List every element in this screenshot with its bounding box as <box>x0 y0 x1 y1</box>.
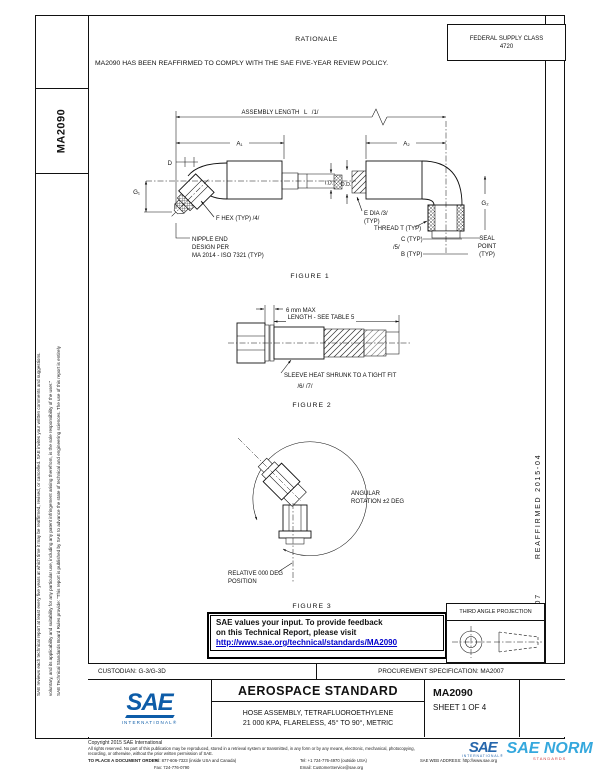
fsc-label: FEDERAL SUPPLY CLASS <box>470 35 544 43</box>
fig1-nipple-label-1: NIPPLE END <box>192 237 228 243</box>
feedback-box: SAE values your input. To provide feedba… <box>207 612 447 659</box>
fig3-relative-label-1: RELATIVE 000 DEG <box>228 571 283 577</box>
federal-supply-class-box: FEDERAL SUPPLY CLASS 4720 <box>447 24 566 61</box>
fig1-seal-label-3: (TYP) <box>479 252 495 258</box>
sae-logo-swoosh <box>125 715 174 718</box>
title-block-center: AEROSPACE STANDARD HOSE ASSEMBLY, TETRAF… <box>212 680 425 737</box>
sheet-number: SHEET 1 OF 4 <box>433 703 519 712</box>
figure3-labels: ANGULAR ROTATION ±2 DEG RELATIVE 000 DEG… <box>228 491 404 610</box>
fig1-note5-label: /5/ <box>393 245 400 251</box>
fig1-seal-label-1: SEAL <box>479 236 495 242</box>
fig1-g1-label: G₁ <box>133 189 140 196</box>
document-title-line-1: HOSE ASSEMBLY, TETRAFLUOROETHYLENE <box>212 709 424 719</box>
procurement-spec-cell: PROCUREMENT SPECIFICATION: MA2007 <box>317 664 565 679</box>
rationale-body: MA2090 HAS BEEN REAFFIRMED TO COMPLY WIT… <box>95 60 388 67</box>
third-angle-projection-box: THIRD ANGLE PROJECTION <box>446 603 545 663</box>
figure1-drawing <box>146 121 464 253</box>
standard-type-heading: AEROSPACE STANDARD <box>212 680 424 702</box>
order-fax: Fax: 724-776-0790 <box>154 765 189 770</box>
fig3-angular-label-2: ROTATION ±2 DEG <box>351 499 404 505</box>
fig1-id-label: I.D. <box>325 181 333 187</box>
watermark-norm-text: SAE NORM <box>507 741 593 756</box>
feedback-line-1: SAE values your input. To provide feedba… <box>216 618 438 628</box>
disclaimer-line-2: voluntary, and its applicability and sui… <box>48 381 54 696</box>
fig1-nipple-label-3: MA 2014 - ISO 7321 (TYP) <box>192 253 264 259</box>
feedback-line-2: on this Technical Report, please visit <box>216 628 438 638</box>
doc-number-side-box: MA2090 <box>35 88 88 174</box>
order-tel-outside: Tel: +1 724-776-4970 (outside USA) <box>300 758 367 763</box>
fig2-length-label: LENGTH - SEE TABLE 5 <box>288 315 355 321</box>
fig1-nipple-label-2: DESIGN PER <box>192 245 230 251</box>
document-page: MA2090 SAE Technical Standards Board Rul… <box>0 0 600 776</box>
document-title-line-2: 21 000 KPA, FLARELESS, 45° TO 90°, METRI… <box>212 719 424 729</box>
fig1-edia-label-1: E DIA /3/ <box>364 211 388 217</box>
feedback-link[interactable]: http://www.sae.org/technical/standards/M… <box>216 638 397 647</box>
fsc-number: 4720 <box>500 43 513 51</box>
figure3-caption: FIGURE 3 <box>292 603 331 610</box>
doc-number-cell: MA2090 SHEET 1 OF 4 <box>425 680 520 737</box>
fig2-sleeve-label: SLEEVE HEAT SHRUNK TO A TIGHT FIT <box>284 373 397 379</box>
custodian-cell: CUSTODIAN: G-3/G-3D <box>88 664 317 679</box>
fig3-relative-label-2: POSITION <box>228 579 257 585</box>
title-block: SAE INTERNATIONAL® AEROSPACE STANDARD HO… <box>88 680 565 737</box>
order-label: TO PLACE A DOCUMENT ORDER: <box>88 758 159 763</box>
fig1-b-label: B (TYP) <box>401 252 422 258</box>
order-tel-inside: Tel: 877-606-7323 (inside USA and Canada… <box>154 758 236 763</box>
fig1-edia-label-2: (TYP) <box>364 219 380 225</box>
sae-logo: SAE INTERNATIONAL® <box>88 680 212 737</box>
fig2-notes-label: /6/ /7/ <box>297 384 312 390</box>
fig1-fhex-label: F HEX (TYP) /4/ <box>216 216 260 222</box>
sae-logo-international: INTERNATIONAL® <box>122 720 178 725</box>
watermark-international-text: INTERNATIONAL® <box>462 754 504 758</box>
projection-title: THIRD ANGLE PROJECTION <box>447 604 544 621</box>
sae-logo-text: SAE <box>126 692 172 714</box>
order-email: Email: CustomerService@sae.org <box>300 765 363 770</box>
fig1-thread-label: THREAD T (TYP) <box>374 226 421 232</box>
fig1-od-label: O.D. <box>341 182 352 188</box>
disclaimer-line-1: SAE Technical Standards Board Rules prov… <box>56 346 62 696</box>
rights-line-2: recording, or otherwise, without the pri… <box>88 751 213 756</box>
sae-norm-watermark: SAE INTERNATIONAL® SAE NORM STANDARDS <box>462 741 598 761</box>
fig1-seal-label-2: POINT <box>478 244 497 250</box>
projection-symbol-icon <box>447 621 544 662</box>
doc-number-side-label: MA2090 <box>55 109 67 154</box>
fig1-a1-label: A₁ <box>236 141 242 148</box>
fig1-g2-label: G₂ <box>481 200 489 207</box>
fig2-max-label: 6 mm MAX <box>286 308 316 314</box>
figure3-drawing <box>238 438 367 582</box>
fig1-a2-label: A₂ <box>403 141 410 148</box>
watermark-sae-logo: SAE INTERNATIONAL® <box>462 741 504 758</box>
fig3-angular-label-1: ANGULAR <box>351 491 381 497</box>
custodian-row: CUSTODIAN: G-3/G-3D PROCUREMENT SPECIFIC… <box>88 663 565 680</box>
watermark-sae-text: SAE <box>469 741 497 754</box>
figure1-caption: FIGURE 1 <box>290 273 329 280</box>
fig1-c-label: C (TYP) <box>401 237 423 243</box>
figure2-caption: FIGURE 2 <box>292 402 331 409</box>
doc-number: MA2090 <box>433 687 519 699</box>
title-block-empty-cell <box>520 680 565 737</box>
fig1-d-label: D <box>168 161 173 167</box>
fig1-assembly-length-label: ASSEMBLY LENGTH L /1/ <box>242 110 319 116</box>
technical-drawing: ASSEMBLY LENGTH L /1/ A₁ A₂ D G₁ F HEX (… <box>88 75 545 615</box>
disclaimer-line-3: SAE reviews each technical report at lea… <box>36 352 42 696</box>
